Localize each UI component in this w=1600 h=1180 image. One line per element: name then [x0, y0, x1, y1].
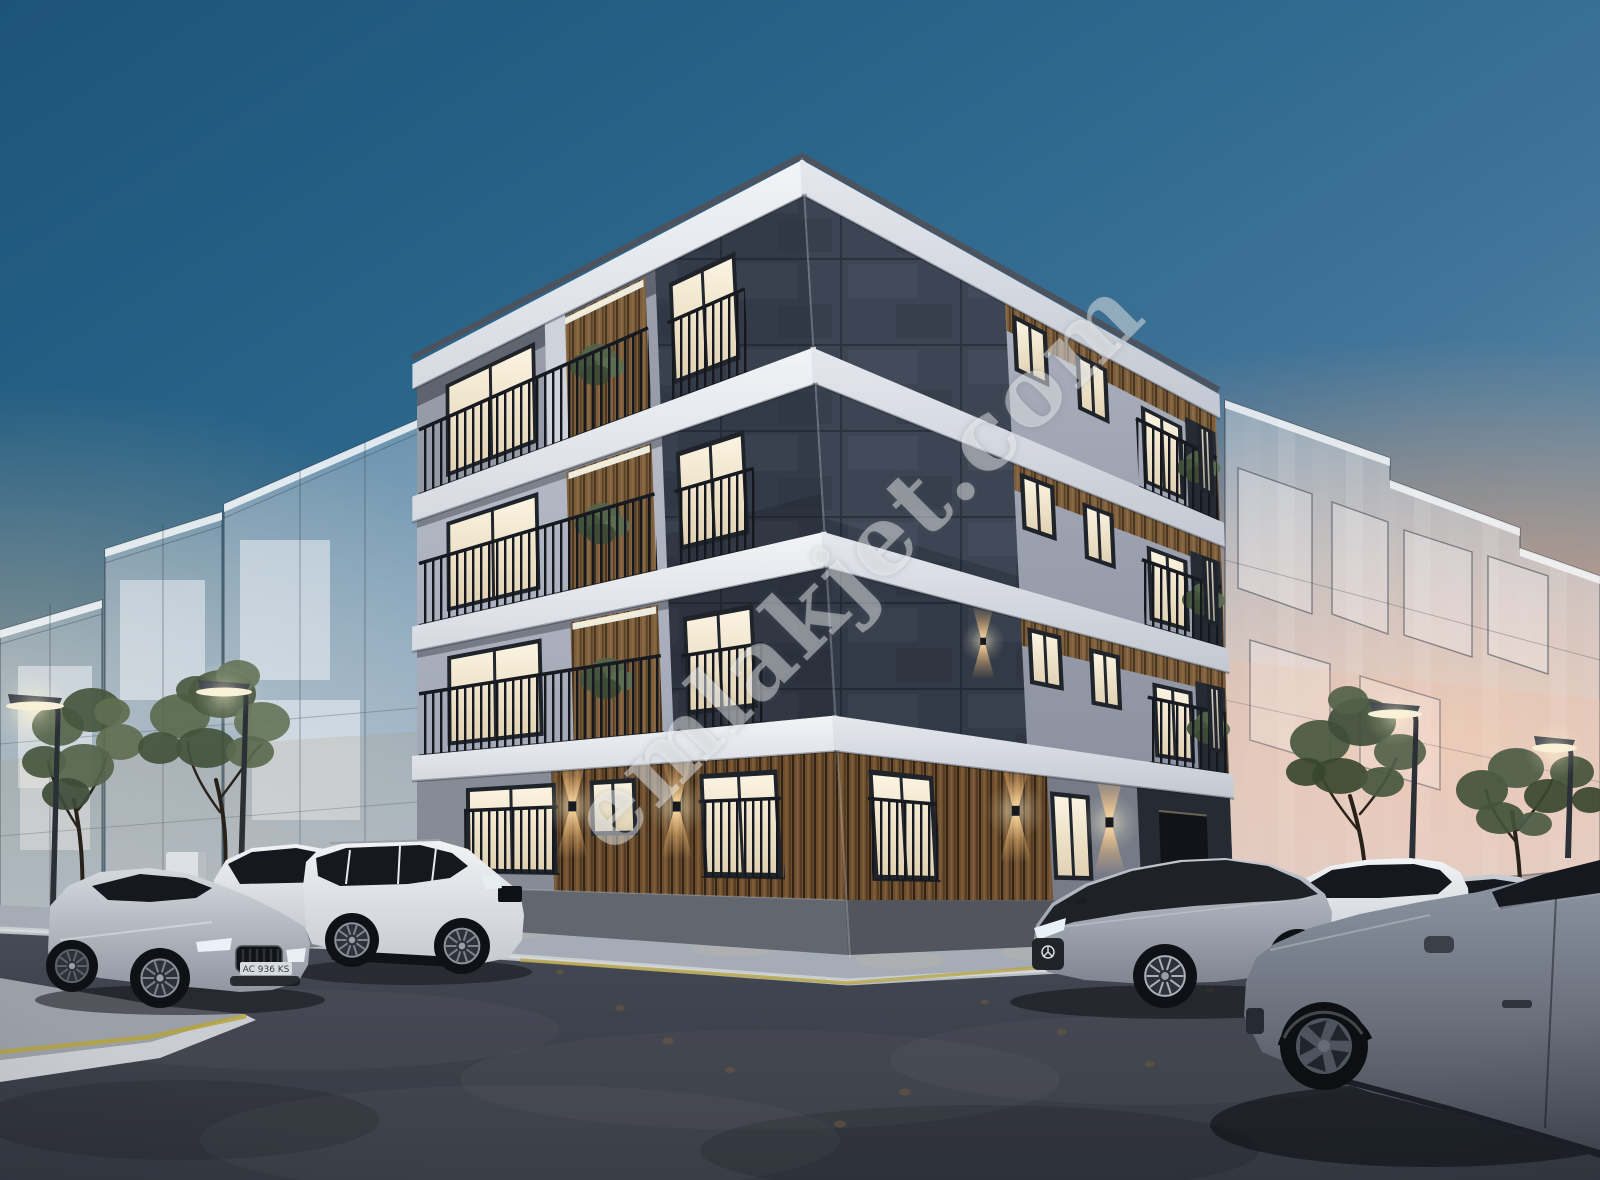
- fallen-leaf: [981, 1000, 989, 1005]
- balcony-railing: [868, 798, 941, 881]
- render-canvas: AC 936 KS emlakjet.com: [0, 0, 1600, 1180]
- window: [1207, 684, 1224, 753]
- fallen-leaf: [899, 1088, 911, 1095]
- window: [1197, 423, 1215, 497]
- side-mirror: [1424, 936, 1454, 953]
- fallen-leaf: [834, 1120, 846, 1127]
- lamp-glow: [5, 678, 65, 738]
- tree-foliage: [94, 698, 130, 726]
- tree-foliage: [1328, 686, 1368, 714]
- fog-inset: [1246, 1008, 1264, 1034]
- glass-balcony-box: [1404, 530, 1472, 657]
- tree-foliage: [1360, 767, 1404, 797]
- fallen-leaf: [662, 1037, 674, 1044]
- window: [1089, 648, 1122, 711]
- tree-foliage: [226, 736, 274, 768]
- fallen-leaf: [1145, 1061, 1155, 1067]
- front-intake: [230, 976, 300, 986]
- side-mirror: [1076, 898, 1086, 904]
- glass-balcony-box: [1238, 468, 1312, 614]
- door-handle: [1502, 1000, 1532, 1008]
- tree-foliage: [1516, 812, 1552, 836]
- fallen-leaf: [615, 1005, 625, 1011]
- main-building: [412, 156, 1235, 958]
- glass-balcony-box: [1332, 502, 1388, 634]
- glass-balcony-box: [1488, 556, 1548, 674]
- balcony-railing: [699, 798, 785, 878]
- tree-foliage: [42, 778, 90, 810]
- front-grille-panel: [1032, 938, 1064, 970]
- fallen-leaf: [556, 970, 564, 975]
- lamp-glow: [1525, 720, 1585, 780]
- window: [1202, 555, 1220, 627]
- lamp-glow: [194, 664, 254, 724]
- fallen-leaf: [725, 1067, 735, 1073]
- grille: [498, 886, 522, 902]
- fallen-leaf: [1057, 1029, 1067, 1035]
- tree-foliage: [1476, 802, 1524, 834]
- lamp-glow: [1365, 686, 1425, 746]
- headlight: [286, 948, 306, 962]
- inner-volume: [240, 540, 330, 680]
- tree-foliage: [1286, 758, 1326, 786]
- scene-illustration: AC 936 KS: [0, 0, 1600, 1180]
- tree-foliage: [138, 732, 182, 764]
- balcony-railing: [681, 643, 766, 730]
- window: [1027, 627, 1064, 691]
- license-plate-text: AC 936 KS: [243, 965, 290, 975]
